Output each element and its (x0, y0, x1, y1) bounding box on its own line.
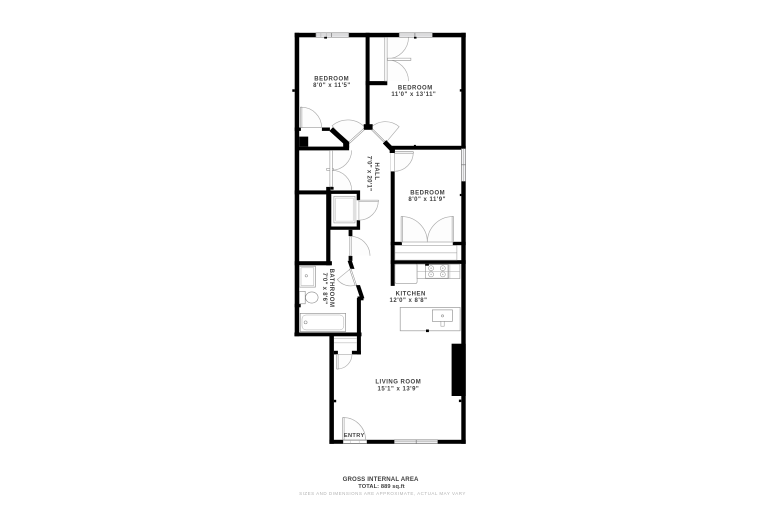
svg-text:ENTRY: ENTRY (344, 433, 365, 439)
svg-text:GROSS INTERNAL AREA: GROSS INTERNAL AREA (343, 476, 419, 483)
svg-text:SIZES AND DIMENSIONS ARE APPRO: SIZES AND DIMENSIONS ARE APPROXIMATE, AC… (299, 491, 466, 496)
svg-text:BATHROOM: BATHROOM (328, 269, 334, 308)
svg-text:8'0" x 11'9": 8'0" x 11'9" (408, 197, 446, 203)
svg-text:15'1" x 13'9": 15'1" x 13'9" (378, 387, 420, 393)
svg-text:12'0" x 8'8": 12'0" x 8'8" (390, 298, 428, 304)
svg-text:KITCHEN: KITCHEN (396, 291, 426, 297)
svg-text:BEDROOM: BEDROOM (398, 85, 433, 91)
svg-text:7'0" x 20'1": 7'0" x 20'1" (366, 156, 372, 192)
svg-text:8'0" x 11'5": 8'0" x 11'5" (313, 83, 351, 89)
svg-text:BEDROOM: BEDROOM (410, 190, 445, 196)
svg-text:TOTAL: 889 sq.ft: TOTAL: 889 sq.ft (358, 484, 405, 490)
svg-text:BEDROOM: BEDROOM (314, 76, 349, 82)
svg-text:HALL: HALL (373, 163, 379, 181)
svg-text:7'0" x 8'6": 7'0" x 8'6" (321, 273, 327, 305)
svg-text:LIVING ROOM: LIVING ROOM (375, 380, 421, 386)
svg-text:11'0" x 13'11": 11'0" x 13'11" (391, 92, 436, 98)
